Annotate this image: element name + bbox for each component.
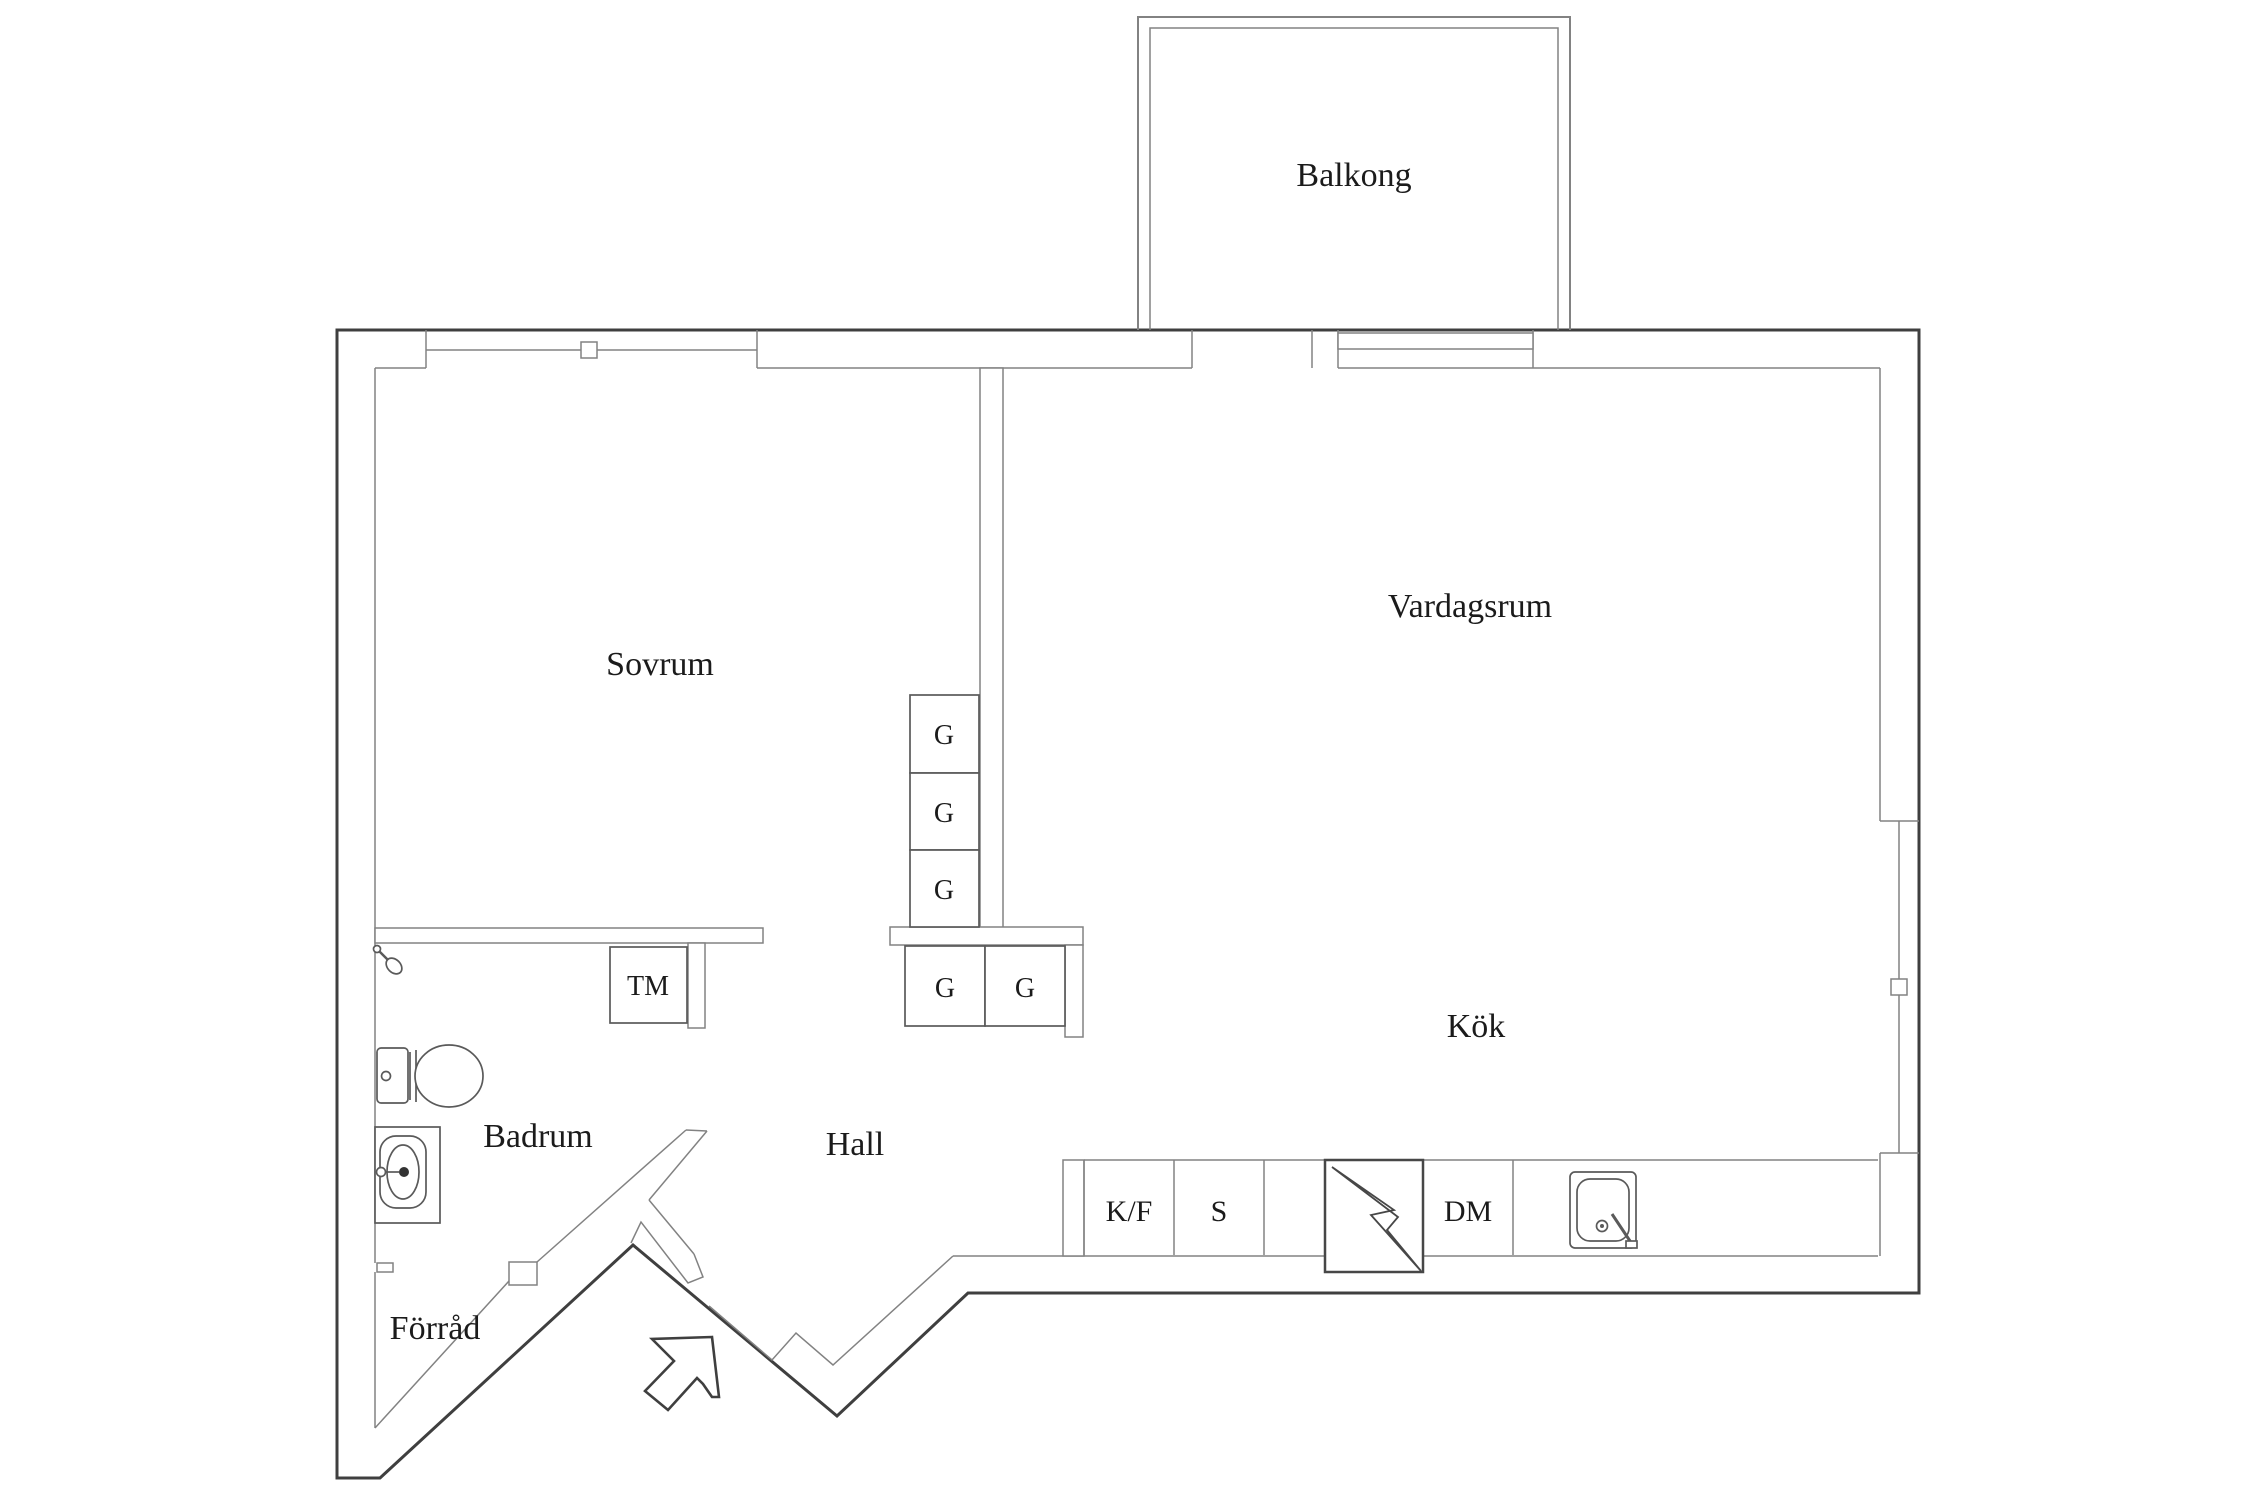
bathroom-sink-icon (375, 1127, 440, 1223)
outer-wall (337, 330, 1919, 1478)
kitchen-counter: K/F S DM (1084, 1160, 1878, 1272)
wardrobe-label: G (1015, 973, 1035, 1004)
floor-plan: K/F S DM G G G G G (0, 0, 2250, 1500)
toilet-icon (377, 1045, 483, 1107)
window-latch-icon (1891, 979, 1907, 995)
hall-livingroom-wall (890, 927, 1083, 945)
entrance-arrow-icon (645, 1337, 719, 1410)
room-label-storage: Förråd (390, 1310, 481, 1347)
hall-kitchen-wall-stub (1065, 945, 1083, 1037)
fridge-freezer-unit: K/F (1106, 1195, 1153, 1228)
room-label-hall: Hall (826, 1126, 885, 1163)
washing-machine-label: TM (627, 971, 669, 1002)
counter-end-panel (1063, 1160, 1084, 1256)
storage-door-jamb-left (377, 1263, 393, 1272)
wardrobe-label: G (935, 973, 955, 1004)
wardrobe-label: G (934, 798, 954, 829)
balcony-door-icon (1338, 333, 1533, 349)
dishwasher-label: DM (1444, 1195, 1492, 1228)
shower-icon (374, 946, 405, 977)
room-label-living-room: Vardagsrum (1388, 588, 1552, 625)
bedroom-livingroom-wall (980, 368, 1003, 928)
bedroom-bathroom-wall (375, 928, 763, 943)
room-label-bathroom: Badrum (483, 1118, 593, 1155)
storage-door-jamb-right (509, 1262, 537, 1285)
kitchen-window (1880, 821, 1919, 1153)
stove-unit: S (1211, 1195, 1228, 1228)
kitchen-sink-icon (1570, 1172, 1637, 1248)
bedroom-window (426, 342, 757, 358)
inner-wall-lines (375, 330, 1880, 1428)
bathroom-fixtures: TM (374, 946, 688, 1224)
bathroom-door-jamb (688, 943, 705, 1028)
wardrobe-label: G (934, 720, 954, 751)
room-label-kitchen: Kök (1447, 1008, 1506, 1045)
dishwasher-unit: DM (1444, 1195, 1492, 1228)
floor-plan-svg: K/F S DM G G G G G (0, 0, 2250, 1500)
electrical-panel (1325, 1160, 1423, 1272)
room-label-bedroom: Sovrum (606, 646, 714, 683)
washing-machine: TM (610, 947, 687, 1023)
wardrobe-label: G (934, 875, 954, 906)
fridge-freezer-label: K/F (1106, 1195, 1153, 1228)
stove-label: S (1211, 1195, 1228, 1228)
room-label-balcony: Balkong (1296, 157, 1411, 194)
window-latch-icon (581, 342, 597, 358)
